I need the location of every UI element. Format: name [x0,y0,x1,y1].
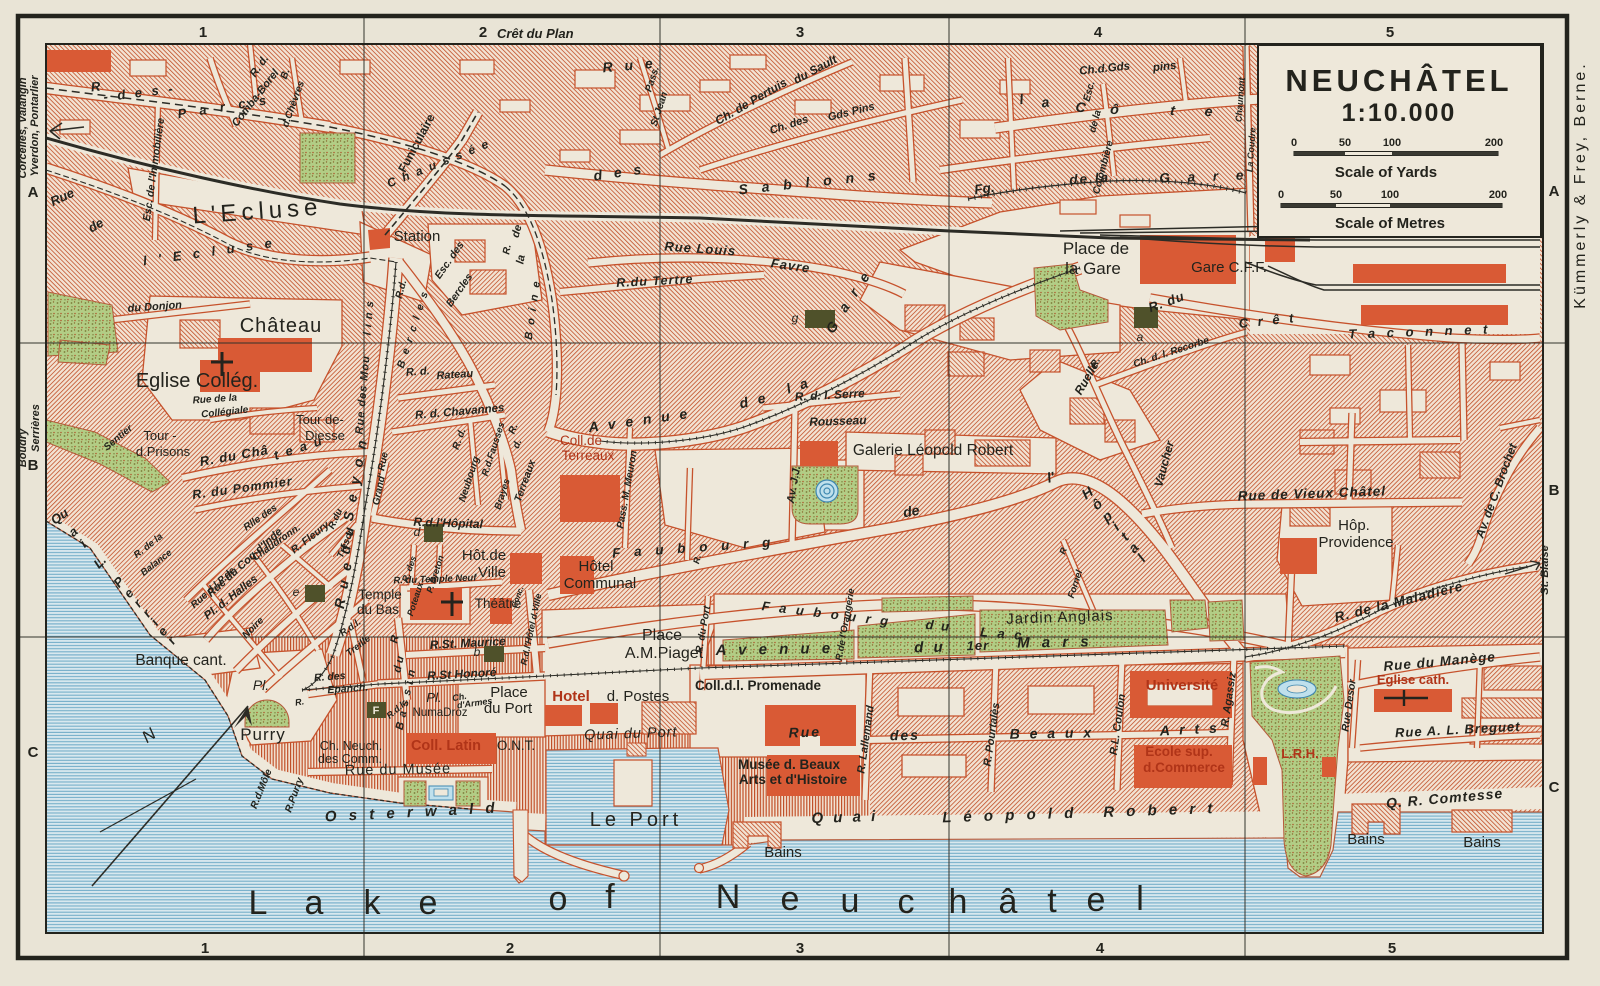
svg-text:Hôtel: Hôtel [578,558,613,575]
svg-text:d. Postes: d. Postes [607,688,670,705]
svg-text:Place: Place [490,684,528,701]
svg-text:R. des: R. des [314,670,346,684]
svg-text:o: o [549,880,568,918]
svg-text:Musée d. Beaux: Musée d. Beaux [738,757,841,772]
svg-text:Crêt du Plan: Crêt du Plan [497,26,574,41]
svg-text:Rue du Musée: Rue du Musée [345,761,452,779]
svg-text:Arts et d'Histoire: Arts et d'Histoire [739,772,848,787]
svg-text:50: 50 [1339,137,1351,149]
svg-text:Kümmerly & Frey, Berne.: Kümmerly & Frey, Berne. [1572,61,1589,308]
svg-text:A v e n u e: A v e n u e [715,640,835,659]
svg-text:Place de: Place de [1063,239,1129,258]
svg-text:Station: Station [394,228,441,245]
svg-text:Rue: Rue [788,723,821,740]
svg-text:u: u [841,882,860,920]
svg-text:Ville: Ville [478,564,506,581]
svg-text:L.R.H.: L.R.H. [1281,746,1319,761]
svg-text:1er: 1er [967,638,990,653]
svg-text:Boudry: Boudry [17,428,29,467]
svg-text:4: 4 [1094,24,1103,41]
svg-text:2: 2 [479,24,487,41]
svg-text:d u: d u [925,617,952,634]
svg-text:Q u a i: Q u a i [811,808,878,827]
svg-text:F: F [373,705,380,717]
svg-text:Communal: Communal [564,575,637,592]
svg-text:Yverdon, Pontarlier: Yverdon, Pontarlier [29,75,41,177]
svg-text:Coll.d.l. Promenade: Coll.d.l. Promenade [695,678,822,693]
svg-text:0: 0 [1291,137,1297,149]
svg-text:Le Port: Le Port [590,809,682,831]
svg-text:Bains: Bains [1347,831,1385,848]
svg-text:des: des [890,727,920,744]
svg-text:B e a u x: B e a u x [1009,724,1094,741]
svg-text:t: t [1047,882,1057,920]
svg-text:NEUCHÂTEL: NEUCHÂTEL [1285,62,1512,98]
svg-text:N: N [716,878,741,916]
svg-text:Eglise Collég.: Eglise Collég. [136,370,258,392]
svg-text:200: 200 [1489,189,1507,201]
svg-text:Place: Place [642,627,682,644]
svg-text:4: 4 [1096,940,1105,957]
svg-text:G a r e: G a r e [1159,167,1250,185]
svg-text:e: e [419,884,438,922]
svg-text:St. Blaise: St. Blaise [1539,545,1551,595]
svg-text:Hôp.: Hôp. [1338,517,1370,534]
svg-text:A: A [28,184,39,201]
svg-text:Rousseau: Rousseau [809,413,867,429]
svg-text:k: k [364,884,382,922]
svg-text:A r t s: A r t s [1158,719,1220,738]
svg-text:la Gare: la Gare [1065,259,1121,278]
svg-text:Hotel: Hotel [552,688,590,705]
svg-text:Galerie Léopold Robert: Galerie Léopold Robert [853,442,1014,459]
svg-text:3: 3 [796,24,804,41]
svg-text:B: B [1549,482,1560,499]
svg-text:Tour -: Tour - [143,428,176,443]
svg-text:Fg.: Fg. [973,180,995,198]
svg-text:5: 5 [1386,24,1394,41]
svg-text:C: C [1549,779,1560,796]
svg-text:Eglise cath.: Eglise cath. [1377,672,1449,687]
svg-text:Pl.: Pl. [253,677,269,693]
svg-text:Scale of Metres: Scale of Metres [1335,215,1445,232]
svg-text:e: e [781,880,800,918]
svg-text:Bains: Bains [1463,834,1501,851]
svg-text:R.: R. [501,244,514,256]
svg-text:Coll. Latin: Coll. Latin [411,738,481,754]
svg-text:f: f [605,878,615,916]
svg-text:R.d.l'Hôpital: R.d.l'Hôpital [413,515,484,531]
svg-text:Ch. Neuch.: Ch. Neuch. [320,739,383,753]
svg-text:1: 1 [199,24,207,41]
svg-text:Ecole sup.: Ecole sup. [1145,744,1213,759]
svg-text:Providence: Providence [1318,534,1393,551]
svg-text:5: 5 [1388,940,1396,957]
svg-text:0: 0 [1278,189,1284,201]
svg-text:Pl.: Pl. [426,690,441,705]
svg-text:Terreaux: Terreaux [562,448,615,463]
svg-text:100: 100 [1381,189,1399,201]
svg-text:c: c [898,883,915,921]
svg-text:A: A [1549,183,1560,200]
svg-text:50: 50 [1330,189,1342,201]
svg-text:200: 200 [1485,137,1503,149]
svg-text:1:10.000: 1:10.000 [1342,99,1457,127]
svg-text:C: C [28,744,39,761]
svg-text:Coll.de: Coll.de [560,433,602,448]
svg-text:de la: de la [1069,170,1111,188]
svg-text:a: a [305,884,324,922]
svg-text:Quai du Port: Quai du Port [584,724,678,743]
svg-text:Serrières: Serrières [30,404,42,452]
svg-text:Hôt.de: Hôt.de [462,547,506,564]
svg-text:d.Prisons: d.Prisons [136,444,191,459]
svg-text:R.: R. [294,696,305,707]
svg-text:Bains: Bains [764,844,802,861]
svg-text:Corcelles, Valangin: Corcelles, Valangin [17,77,29,178]
svg-text:Purry: Purry [240,725,286,744]
svg-text:e: e [293,585,300,599]
svg-text:a: a [1137,330,1144,344]
svg-text:l: l [1136,880,1144,918]
svg-text:Gare C.F.F.: Gare C.F.F. [1191,259,1267,276]
svg-text:B: B [28,457,39,474]
svg-text:e: e [1087,881,1106,919]
svg-text:Temple: Temple [358,587,402,602]
svg-text:100: 100 [1383,137,1401,149]
svg-text:Tour de-: Tour de- [296,412,344,427]
svg-text:R. d.: R. d. [405,365,430,379]
svg-text:O.N.T.: O.N.T. [497,738,535,753]
svg-text:â: â [999,883,1018,921]
svg-text:du Bas: du Bas [357,602,399,617]
svg-text:h: h [949,883,968,921]
svg-text:M a r s: M a r s [1017,633,1093,651]
svg-text:d u: d u [914,639,946,657]
svg-text:Scale of Yards: Scale of Yards [1335,164,1437,181]
svg-text:d.Commerce: d.Commerce [1143,760,1225,775]
svg-text:pins: pins [1151,60,1177,75]
svg-text:1: 1 [201,940,209,957]
svg-text:de: de [902,502,921,521]
svg-text:L: L [249,884,268,922]
svg-text:3: 3 [796,940,804,957]
svg-text:Université: Université [1146,677,1219,694]
svg-text:Banque cant.: Banque cant. [135,652,226,669]
svg-text:Château: Château [240,315,323,337]
svg-text:A.M.Piaget: A.M.Piaget [625,645,704,662]
svg-text:2: 2 [506,940,514,957]
svg-text:g: g [792,311,799,325]
